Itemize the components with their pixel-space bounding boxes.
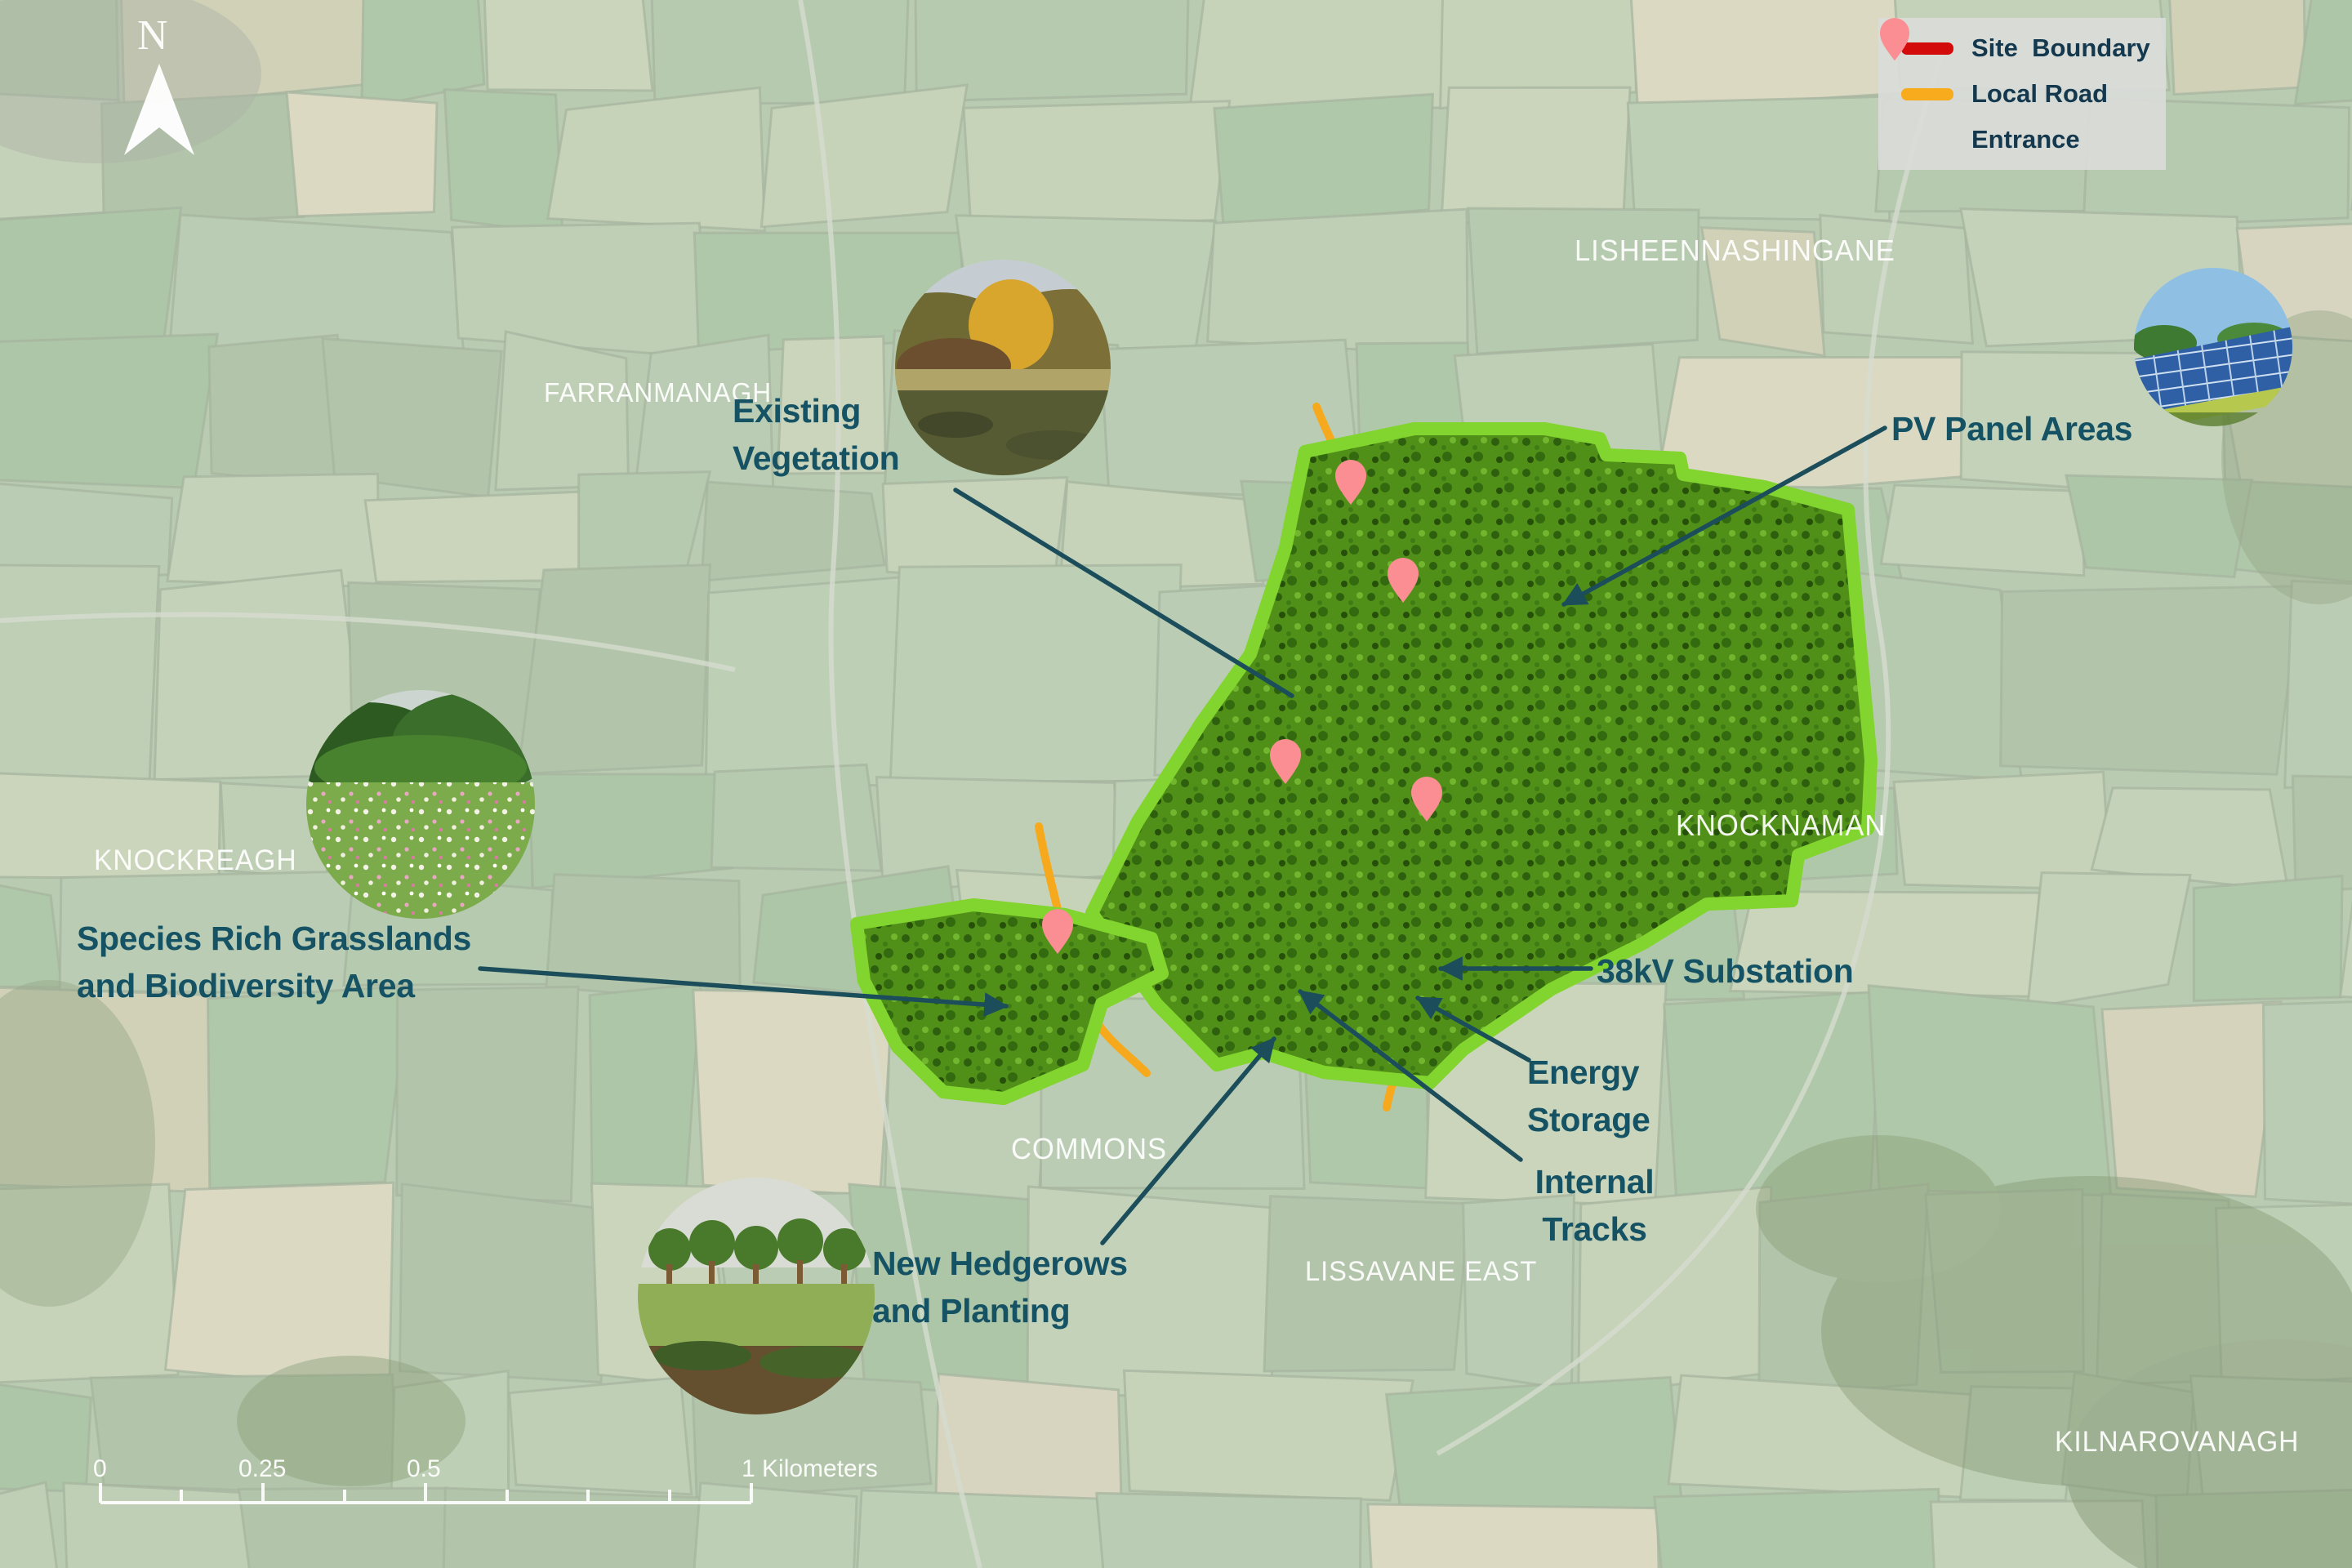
main-site-area <box>1092 407 1871 1107</box>
species-rich-grassland-photo <box>290 690 555 921</box>
callout-38kv-substation: 38kV Substation <box>1597 947 1853 995</box>
callout-line: Species Rich Grasslands <box>77 915 471 962</box>
legend-label: Entrance <box>1971 125 2080 154</box>
map-legend: Site Boundary Local Road Entrance <box>1878 18 2166 170</box>
solar-farm-site-map: LISHEENNASHINGANE FARRANMANAGH KNOCKREAG… <box>0 0 2352 1568</box>
townland-label-knocknaman: KNOCKNAMAN <box>1676 808 1886 843</box>
callout-line: and Planting <box>872 1287 1128 1334</box>
callout-line: Energy <box>1527 1049 1650 1096</box>
legend-item-site-boundary: Site Boundary <box>1901 31 2166 65</box>
townland-label-kilnarovanagh: KILNAROVANAGH <box>2055 1426 2299 1459</box>
callout-line: Vegetation <box>733 434 899 482</box>
townland-label-lisheennashingane: LISHEENNASHINGANE <box>1575 234 1895 268</box>
leader-existing-vegetation <box>955 490 1292 696</box>
pv-panel-photo <box>2131 268 2292 445</box>
legend-label: Site Boundary <box>1971 33 2150 63</box>
callout-pv-panel-areas: PV Panel Areas <box>1891 405 2132 452</box>
callout-energy-storage: Energy Storage <box>1527 1049 1650 1143</box>
callout-existing-vegetation: Existing Vegetation <box>733 387 899 482</box>
legend-item-entrance: Entrance <box>1901 122 2166 157</box>
callout-new-hedgerows: New Hedgerows and Planting <box>872 1240 1128 1334</box>
legend-item-local-road: Local Road <box>1901 77 2166 111</box>
callout-line: Tracks <box>1519 1205 1670 1253</box>
callout-line: New Hedgerows <box>872 1240 1128 1287</box>
existing-vegetation-photo <box>862 260 1151 480</box>
callout-line: Internal <box>1519 1158 1670 1205</box>
townland-label-lissavane-east: LISSAVANE EAST <box>1305 1256 1537 1288</box>
townland-label-knockreagh: KNOCKREAGH <box>94 844 297 877</box>
scale-bar-line <box>100 1483 751 1503</box>
callout-line: and Biodiversity Area <box>77 962 471 1009</box>
callout-line: Storage <box>1527 1096 1650 1143</box>
legend-label: Local Road <box>1971 79 2108 109</box>
local-road-swatch <box>1901 88 1953 100</box>
north-arrow: N <box>106 11 229 183</box>
north-arrow-glyph <box>124 64 194 155</box>
callout-species-rich-grasslands: Species Rich Grasslands and Biodiversity… <box>77 915 471 1009</box>
callout-internal-tracks: Internal Tracks <box>1519 1158 1670 1253</box>
callout-line: PV Panel Areas <box>1891 405 2132 452</box>
scale-bar: 0 0.25 0.5 1 Kilometers <box>82 1455 817 1529</box>
townland-label-commons: COMMONS <box>1011 1132 1167 1166</box>
callout-line: 38kV Substation <box>1597 947 1853 995</box>
site-plan-overlay <box>0 0 2352 1568</box>
callout-line: Existing <box>733 387 899 434</box>
new-hedgerow-photo <box>638 1178 875 1419</box>
